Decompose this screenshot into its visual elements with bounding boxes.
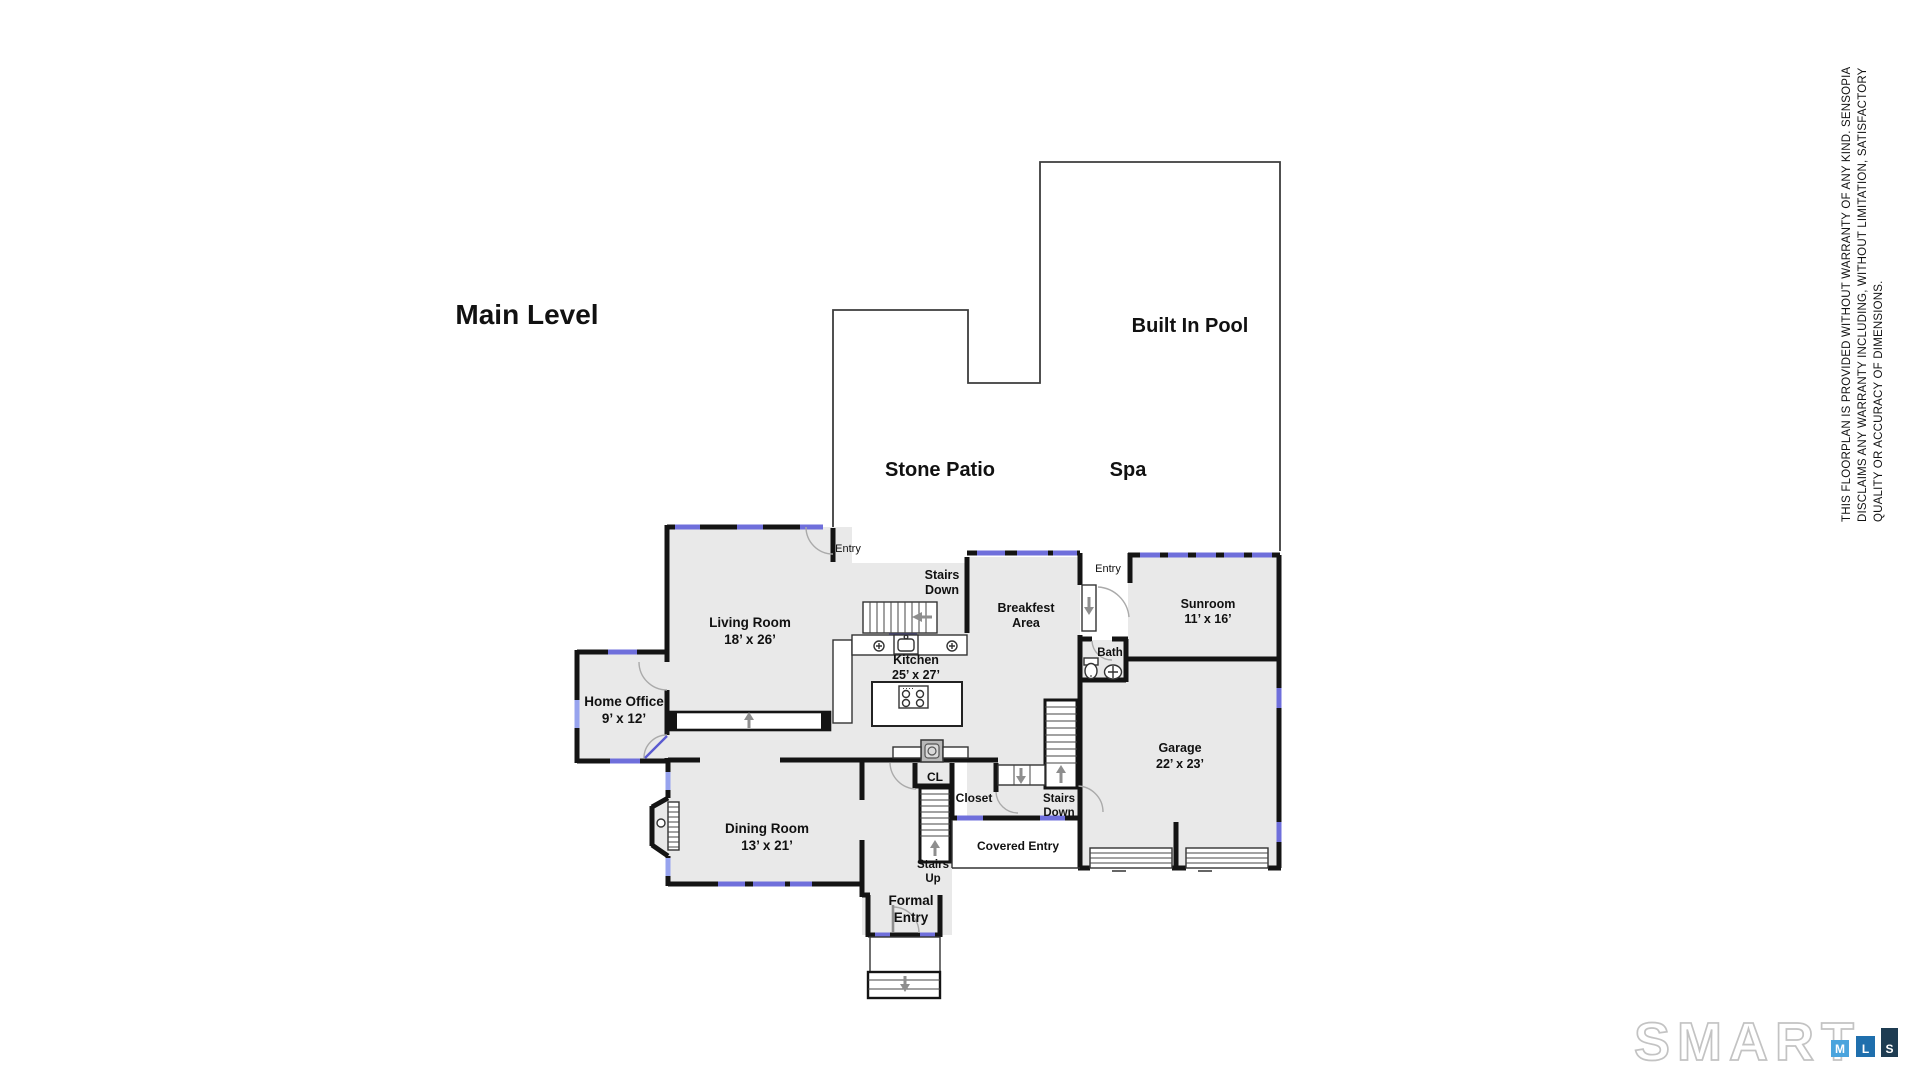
label-entry-top: Entry	[835, 543, 861, 555]
label-kitchen: Kitchen	[893, 653, 939, 667]
label-garage-dims: 22’ x 23’	[1156, 757, 1204, 771]
wall-oven-icon	[921, 740, 943, 762]
stairs-up	[920, 788, 950, 862]
label-covered-entry: Covered Entry	[977, 839, 1059, 853]
kitchen-stairs-down	[863, 602, 937, 633]
counter-left-of-oven	[893, 747, 921, 758]
bath-sink-icon	[1105, 665, 1122, 679]
label-stairs-down-hall: Stairs	[1043, 793, 1075, 805]
label-stairs-down-kitchen: Stairs	[925, 568, 960, 582]
label-living-room: Living Room	[709, 615, 791, 630]
label-stairs-down-kitchen-2: Down	[925, 583, 959, 597]
label-home-office: Home Office	[584, 694, 664, 709]
main-stairs-down	[1045, 700, 1077, 788]
kitchen-sink-icon	[894, 635, 918, 654]
entry-right-door-arc	[1098, 587, 1129, 617]
label-built-in-pool: Built In Pool	[1132, 315, 1249, 337]
cooktop-icon	[899, 686, 928, 708]
label-breakfast-2: Area	[1012, 616, 1041, 630]
label-sunroom: Sunroom	[1181, 597, 1236, 611]
label-formal-entry: Formal	[888, 893, 933, 908]
label-dining-room: Dining Room	[725, 821, 809, 836]
smartmls-wordmark: SMART	[1634, 1012, 1861, 1072]
smartmls-logo: SMART M L S	[1634, 1012, 1898, 1072]
label-kitchen-dims: 25’ x 27’	[892, 668, 940, 682]
floorplan-page: Main Level Built In Pool Stone Patio Spa…	[0, 0, 1920, 1080]
label-breakfast: Breakfest	[998, 601, 1056, 615]
label-stairs-down-hall-2: Down	[1043, 807, 1074, 819]
label-dining-room-dims: 13’ x 21’	[741, 838, 793, 853]
logo-m-letter: M	[1835, 1042, 1845, 1056]
hall-steps	[998, 765, 1045, 785]
label-home-office-dims: 9’ x 12’	[602, 711, 646, 726]
floorplan-canvas: Main Level Built In Pool Stone Patio Spa…	[0, 0, 1920, 1080]
label-sunroom-dims: 11’ x 16’	[1184, 612, 1231, 626]
label-closet: Closet	[956, 791, 993, 805]
patio-entry-door	[1082, 585, 1096, 631]
logo-s-letter: S	[1885, 1042, 1893, 1056]
label-stairs-up-2: Up	[925, 873, 940, 885]
disclaimer-line-1: THIS FLOORPLAN IS PROVIDED WITHOUT WARRA…	[1841, 66, 1853, 522]
page-title: Main Level	[455, 299, 598, 330]
label-stone-patio: Stone Patio	[885, 459, 995, 481]
front-porch-steps	[868, 937, 940, 998]
label-bath: Bath	[1097, 647, 1123, 659]
counter-right-of-oven	[943, 747, 968, 758]
label-cl: CL	[927, 770, 943, 784]
disclaimer-block: THIS FLOORPLAN IS PROVIDED WITHOUT WARRA…	[1841, 66, 1885, 522]
label-garage: Garage	[1158, 741, 1201, 755]
disclaimer-line-2: DISCLAIMS ANY WARRANTY INCLUDING, WITHOU…	[1857, 67, 1869, 522]
patio-pool-outline	[833, 162, 1280, 551]
logo-l-letter: L	[1862, 1042, 1869, 1056]
disclaimer-line-3: QUALITY OR ACCURACY OF DIMENSIONS.	[1873, 280, 1885, 522]
label-stairs-up: Stairs	[917, 859, 949, 871]
label-living-room-dims: 18’ x 26’	[724, 632, 776, 647]
kitchen-island	[872, 682, 962, 726]
label-spa: Spa	[1110, 459, 1148, 481]
toilet-icon	[1084, 658, 1098, 679]
window-bench	[668, 712, 830, 730]
label-entry-right: Entry	[1095, 563, 1121, 575]
label-formal-entry-2: Entry	[894, 910, 929, 925]
pantry-cabinet	[833, 640, 852, 723]
